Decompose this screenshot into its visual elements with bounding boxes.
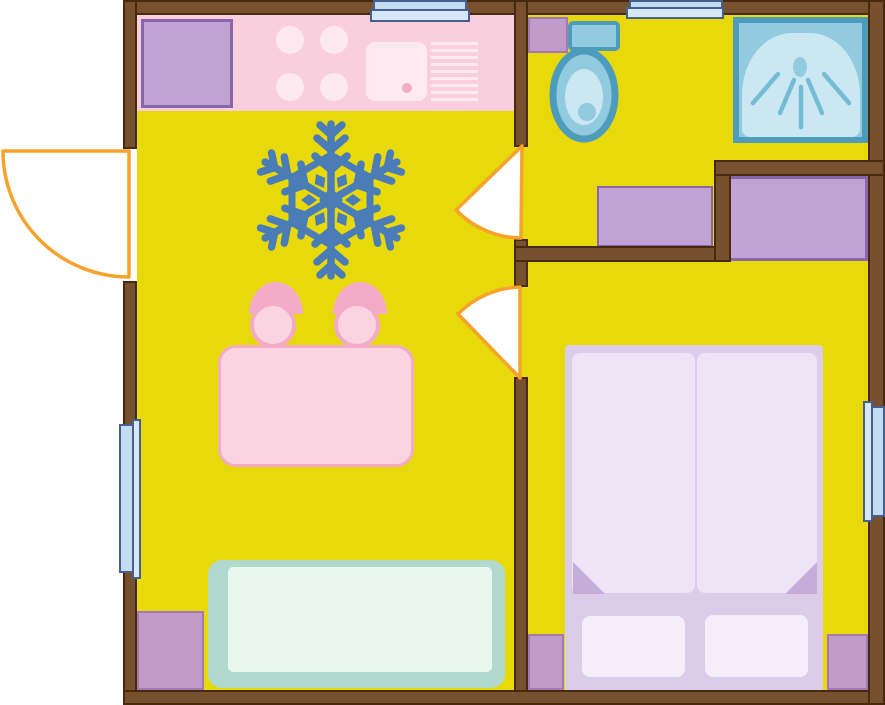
wall-bathroom-bedroom — [514, 246, 731, 262]
wall-center-lower — [514, 377, 528, 692]
sink-drain — [402, 83, 412, 93]
duvet-left — [572, 353, 695, 593]
floor-plan — [0, 0, 885, 705]
duvet-right — [697, 353, 817, 593]
kitchen-sink — [366, 42, 427, 101]
window-sill — [626, 7, 724, 19]
stove-burner — [276, 73, 304, 101]
window-sill — [370, 9, 470, 22]
corner-block — [528, 17, 568, 53]
wall-left-upper — [123, 0, 137, 149]
dining-table — [218, 345, 414, 467]
bathroom-unit — [597, 186, 713, 247]
stove-burner — [320, 73, 348, 101]
wall-top — [123, 0, 885, 15]
pillow — [582, 616, 685, 677]
pillow — [705, 615, 808, 677]
sofa-cushion — [228, 567, 492, 672]
entry-door-swing — [3, 151, 129, 277]
chair-seat — [334, 302, 380, 348]
duvet-fold — [573, 562, 605, 594]
kitchen-cabinet — [141, 19, 233, 108]
wall-bottom — [123, 690, 885, 705]
shower-head-icon — [793, 57, 807, 77]
chair-seat — [250, 302, 296, 348]
window-sill — [863, 401, 873, 522]
stove-burner — [276, 26, 304, 54]
stove-burner — [320, 26, 348, 54]
duvet-fold — [785, 562, 817, 594]
wall-right — [868, 0, 885, 705]
corner-block — [528, 634, 564, 690]
wardrobe — [728, 176, 868, 261]
shower-tray — [742, 33, 860, 137]
wall-center-upper — [514, 0, 528, 147]
corner-block — [137, 611, 204, 690]
wall-step-horizontal — [714, 160, 885, 176]
toilet-tank — [568, 21, 620, 51]
vent-grate — [431, 42, 478, 103]
window-sill — [132, 419, 141, 579]
window-symbol — [871, 406, 885, 517]
corner-block — [827, 634, 868, 690]
